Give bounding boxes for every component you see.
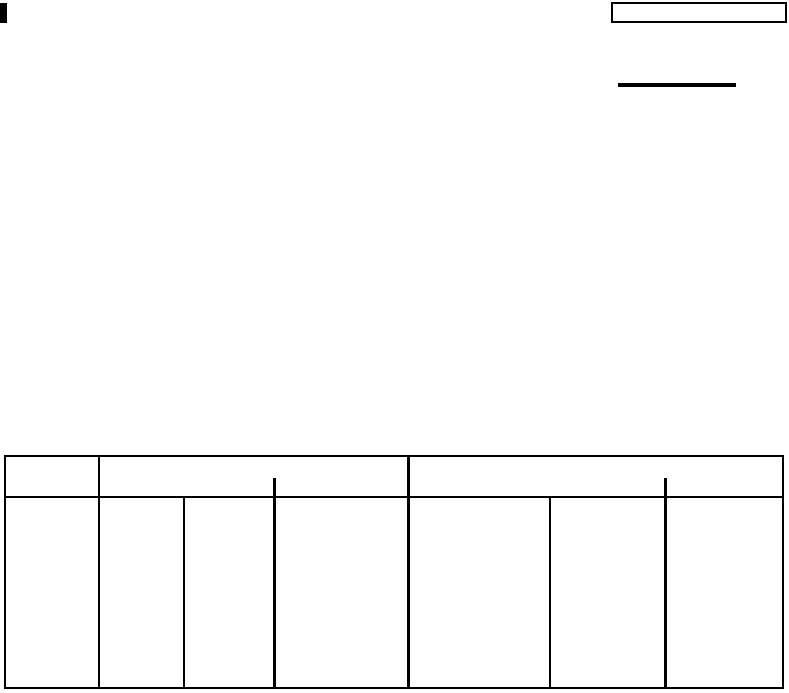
table-left-group-tick-divider xyxy=(273,478,276,687)
fill-in-rule-line xyxy=(618,83,736,87)
top-right-entry-box xyxy=(611,2,787,23)
scan-artifact-mark xyxy=(0,3,7,23)
table-column-divider-1 xyxy=(98,457,100,687)
table-group-divider xyxy=(407,457,410,687)
blank-form-table xyxy=(4,455,784,689)
scanned-form-page xyxy=(0,0,789,693)
table-column-divider-3 xyxy=(549,496,551,687)
table-right-group-tick-divider xyxy=(664,478,667,687)
table-column-divider-2 xyxy=(183,496,185,687)
